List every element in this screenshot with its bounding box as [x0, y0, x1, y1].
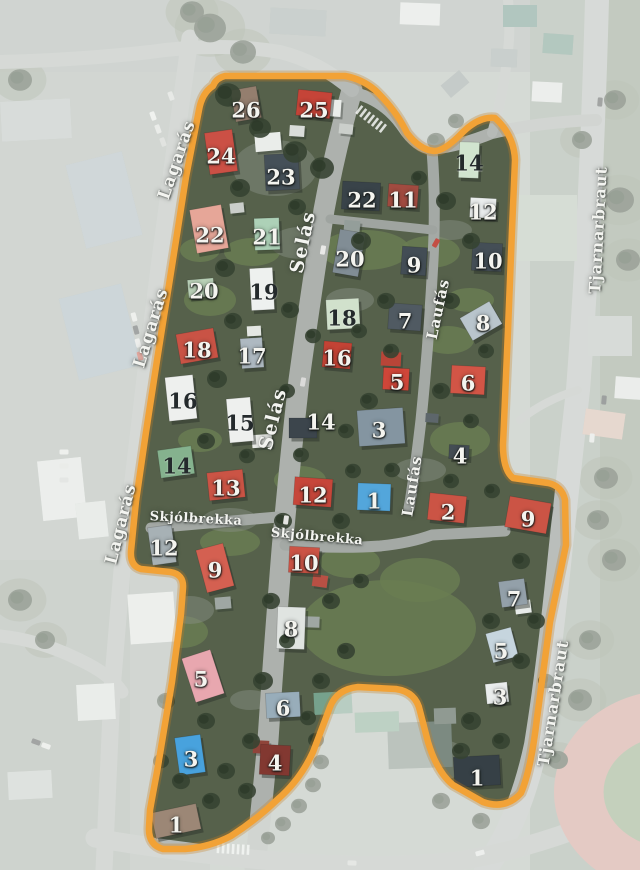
map-root: 2625242322111412222120910201918781817165… [0, 0, 640, 870]
aerial-basemap [0, 0, 640, 870]
